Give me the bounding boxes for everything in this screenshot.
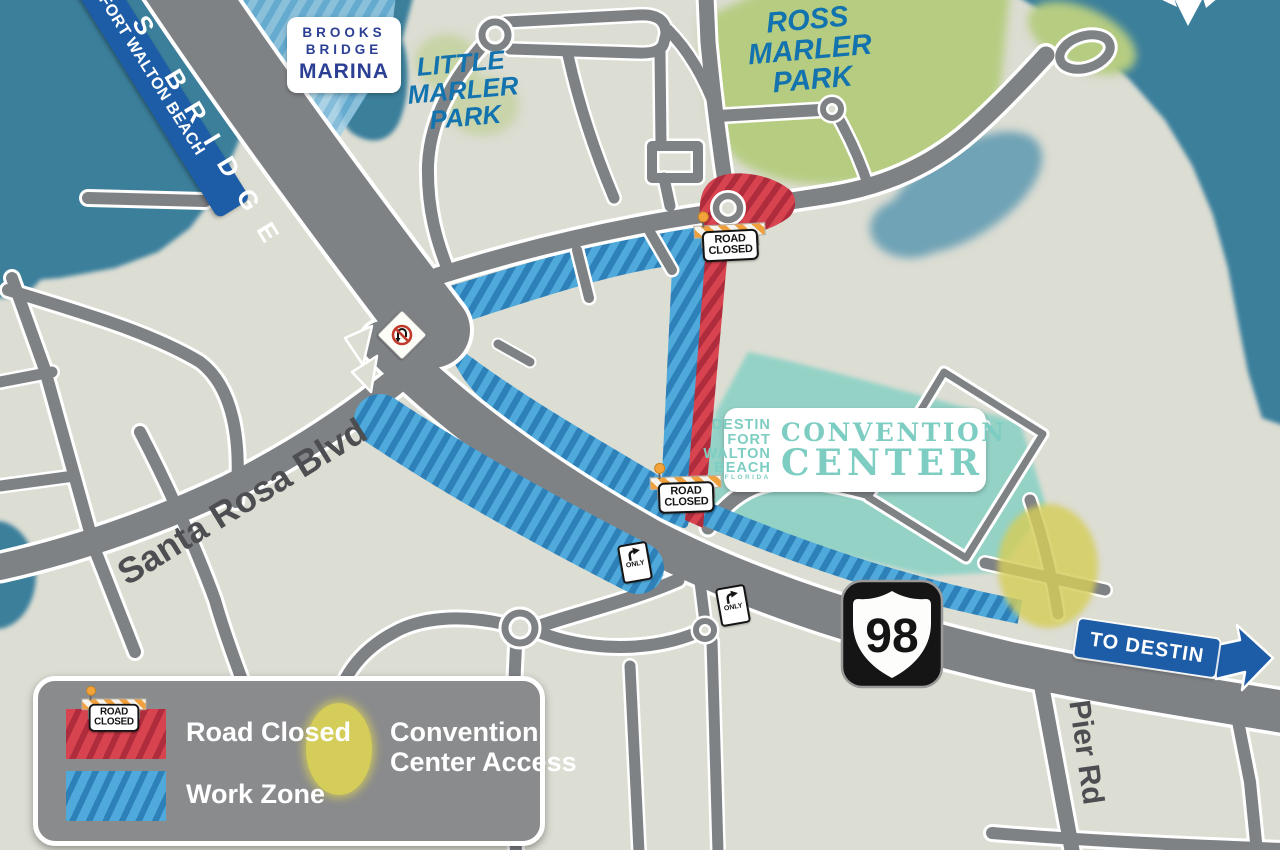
road-closed-panel: ROAD CLOSED	[658, 481, 715, 514]
legend-access-label: Convention Center Access	[390, 717, 577, 777]
road-closed-panel: ROAD CLOSED	[89, 704, 139, 732]
ross-marler-park-label: ROSS MARLER PARK	[724, 0, 895, 103]
no-u-turn-icon	[391, 324, 413, 346]
road-closed-sign-north: ROAD CLOSED	[693, 214, 767, 263]
convention-center-name: CONVENTION CENTER	[781, 420, 1007, 481]
legend-work-zone-swatch	[66, 771, 166, 821]
road-closed-panel: ROAD CLOSED	[702, 229, 760, 263]
barricade-light-icon	[698, 211, 710, 223]
marina-line1: BROOKS	[287, 25, 401, 42]
legend-work-zone-label: Work Zone	[186, 779, 325, 809]
road-closed-sign-south: ROAD CLOSED	[649, 467, 723, 514]
access-oval	[998, 504, 1098, 628]
barricade-light-icon	[654, 463, 665, 474]
little-marler-park-label: LITTLE MARLER PARK	[390, 44, 536, 136]
right-turn-only-sign: ONLY	[617, 541, 653, 585]
legend: ROAD CLOSED Road Closed Work Zone Conven…	[33, 676, 545, 846]
convention-center-logo: DESTIN FORT WALTON BEACH FLORIDA CONVENT…	[724, 408, 986, 492]
marina-box: BROOKS BRIDGE MARINA	[287, 17, 401, 93]
right-turn-only-sign: ONLY	[715, 584, 751, 628]
legend-road-closed-label: Road Closed	[186, 717, 351, 747]
route-number: 98	[840, 609, 944, 664]
legend-road-closed-sign: ROAD CLOSED	[82, 691, 147, 732]
road-closure-map: { "labels": { "bridge": "S BRIDGE", "for…	[0, 0, 1280, 850]
marina-line3: MARINA	[287, 59, 401, 84]
barricade-light-icon	[86, 686, 96, 696]
us-98-shield: 98	[840, 579, 944, 689]
marina-line2: BRIDGE	[287, 42, 401, 59]
